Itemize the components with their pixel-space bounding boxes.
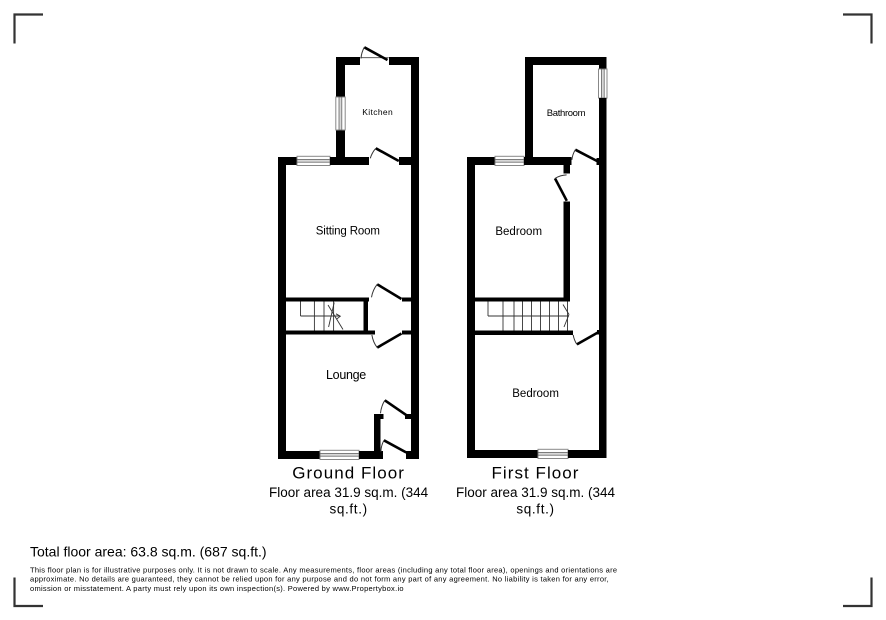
svg-text:This floor plan is for illustr: This floor plan is for illustrative purp…	[30, 565, 617, 574]
svg-text:Lounge: Lounge	[326, 368, 366, 382]
svg-text:Floor area 31.9 sq.m. (344: Floor area 31.9 sq.m. (344	[456, 485, 616, 500]
svg-text:Kitchen: Kitchen	[362, 107, 393, 117]
svg-text:Floor area 31.9 sq.m. (344: Floor area 31.9 sq.m. (344	[269, 485, 429, 500]
svg-text:Total floor area: 63.8 sq.m. (: Total floor area: 63.8 sq.m. (687 sq.ft.…	[30, 543, 267, 559]
svg-text:Ground Floor: Ground Floor	[292, 464, 405, 483]
svg-text:approximate. No details are gu: approximate. No details are guaranteed, …	[30, 575, 609, 584]
svg-text:sq.ft.): sq.ft.)	[329, 501, 367, 516]
svg-text:Bedroom: Bedroom	[512, 388, 559, 400]
svg-text:Bedroom: Bedroom	[495, 226, 542, 238]
svg-text:sq.ft.): sq.ft.)	[516, 501, 554, 516]
svg-text:omission or misstatement. A pa: omission or misstatement. A party must r…	[30, 584, 404, 593]
svg-text:Sitting Room: Sitting Room	[316, 226, 380, 238]
svg-text:Bathroom: Bathroom	[547, 108, 586, 119]
svg-text:First Floor: First Floor	[491, 464, 579, 483]
